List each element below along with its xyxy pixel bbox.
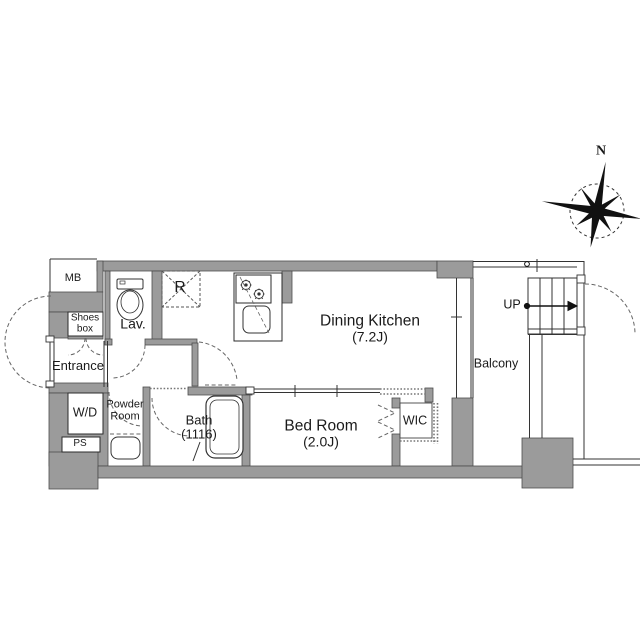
label-balcony: Balcony xyxy=(474,357,518,370)
lavatory-door-arc xyxy=(112,345,145,378)
label-pipe-space: PS xyxy=(73,439,86,450)
stair-door-arc xyxy=(585,284,635,334)
stairs-up-arrow xyxy=(524,262,577,311)
shoes-box-door-arcs xyxy=(68,338,103,355)
toilet-icon xyxy=(117,279,143,320)
label-powder-line2: Room xyxy=(106,411,143,423)
label-bedroom-size: (2.0J) xyxy=(284,435,357,450)
label-dk-size: (7.2J) xyxy=(320,330,420,345)
label-north: N xyxy=(596,145,606,160)
label-washer-dryer: W/D xyxy=(73,406,97,419)
compass-rose-icon xyxy=(535,152,640,255)
label-up: UP xyxy=(503,298,520,311)
kitchen-door-arc xyxy=(199,342,238,385)
washbasin-icon xyxy=(111,437,140,459)
label-shoes-line1: Shoes xyxy=(71,314,99,325)
label-bedroom-name: Bed Room xyxy=(284,419,357,435)
entrance-door-arc xyxy=(5,296,51,388)
label-refrigerator: R xyxy=(174,280,185,296)
label-entrance: Entrance xyxy=(52,359,104,373)
label-powder-room: Powder Room xyxy=(106,399,143,422)
label-lavatory: Lav. xyxy=(120,317,145,332)
kitchen-sink-icon xyxy=(243,306,270,333)
label-dk-name: Dining Kitchen xyxy=(320,314,420,330)
wic-bifold-icon xyxy=(378,405,395,438)
floor-plan-canvas: MB Shoes box Lav. R Entrance W/D PS Powd… xyxy=(0,0,640,640)
label-bath: Bath (1116) xyxy=(181,413,217,440)
label-powder-line1: Powder xyxy=(106,399,143,411)
label-bedroom: Bed Room (2.0J) xyxy=(284,419,357,450)
label-bath-name: Bath xyxy=(181,413,217,427)
label-mb: MB xyxy=(65,273,82,285)
label-bath-size: (1116) xyxy=(181,427,217,441)
label-shoes-line2: box xyxy=(71,324,99,335)
label-dining-kitchen: Dining Kitchen (7.2J) xyxy=(320,314,420,345)
label-shoes-box: Shoes box xyxy=(71,314,99,335)
label-wic: WIC xyxy=(403,414,427,427)
